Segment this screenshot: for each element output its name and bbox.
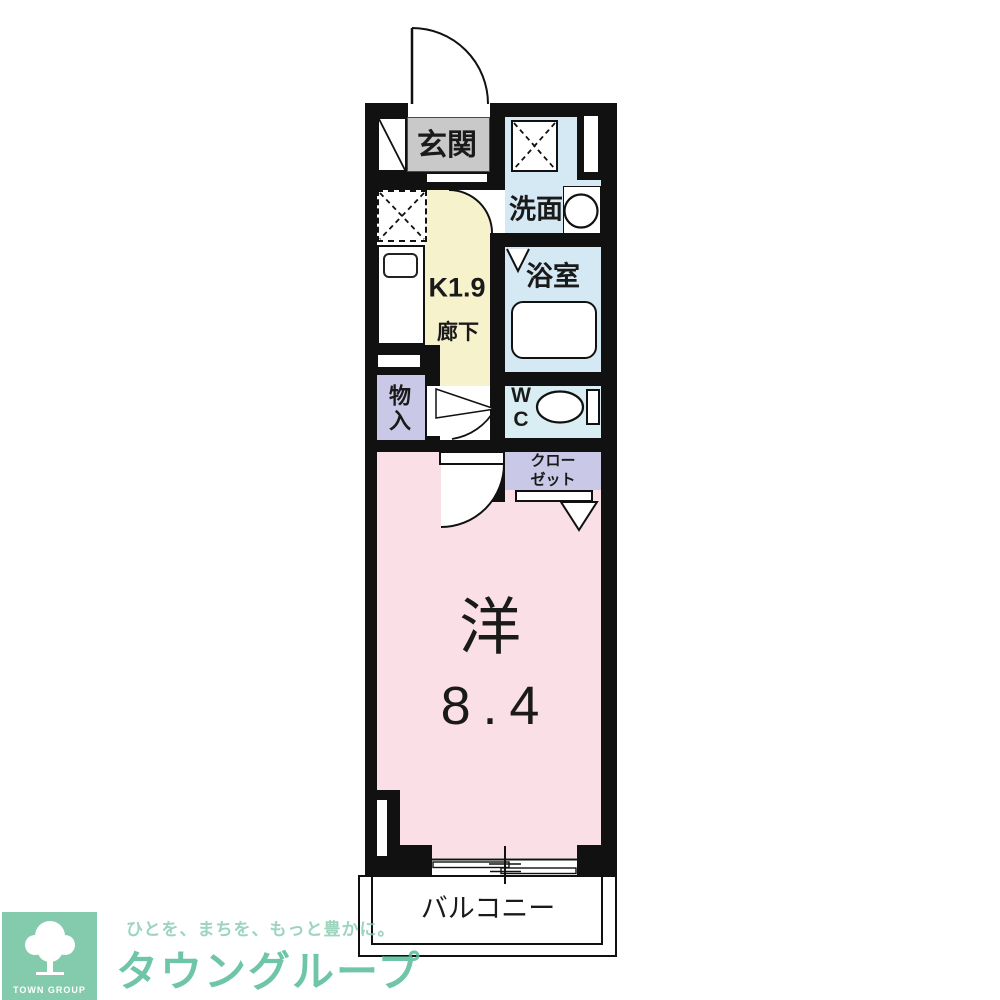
- wall-window-right: [577, 845, 617, 875]
- logo-tagline: ひとを、まちを、もっと豊かに。: [126, 915, 396, 940]
- logo-mark-text: TOWN GROUP: [13, 985, 86, 995]
- front-door-opening: [408, 103, 490, 117]
- wall-mid-vertical: [490, 103, 505, 452]
- washroom-window-slot: [584, 116, 598, 172]
- wall-washroom-bath: [505, 233, 601, 247]
- wall-step-left: [365, 172, 427, 190]
- closet-label: クロー ゼット: [530, 452, 575, 490]
- main-room-size: 8.4: [441, 675, 552, 737]
- floorplan-canvas: 玄関 洗面 浴室 K1.9 廊下 物 入 W C クロー ゼット 洋 8.4 バ…: [0, 0, 1000, 1000]
- wall-window-left: [365, 845, 432, 875]
- kitchen-sink-icon: [383, 253, 418, 278]
- logo-mark: TOWN GROUP: [2, 912, 97, 1000]
- closet-sliding-door-icon: [515, 490, 593, 502]
- wall-left: [365, 103, 377, 875]
- storage-label: 物 入: [389, 384, 411, 435]
- washbasin-counter: [563, 186, 601, 235]
- bathroom-label: 浴室: [526, 261, 580, 292]
- refrigerator-space: [377, 190, 427, 242]
- wall-closet-left: [490, 452, 505, 502]
- front-door-swing-icon: [412, 28, 488, 104]
- toilet-tank-icon: [586, 389, 600, 425]
- wall-right: [601, 103, 617, 875]
- wall-wc-bottom: [490, 438, 617, 452]
- pillar-slot: [377, 800, 387, 856]
- main-room-label: 洋: [459, 592, 521, 663]
- washroom-label: 洗面: [509, 194, 563, 225]
- kitchen-label: K1.9: [428, 272, 485, 303]
- genkan-label: 玄関: [417, 129, 477, 164]
- bathtub-icon: [511, 301, 597, 359]
- logo-brand: タウングループ: [116, 938, 421, 999]
- wall-bath-wc: [490, 372, 617, 386]
- tree-icon: [2, 914, 97, 980]
- wc-door-opening: [427, 386, 440, 436]
- wc-label: W C: [511, 384, 531, 432]
- corridor-label: 廊下: [437, 321, 479, 345]
- genkan-step: [427, 172, 487, 184]
- window-bay: [432, 858, 577, 875]
- shoe-cabinet: [377, 117, 407, 172]
- washroom-door-opening: [490, 190, 505, 233]
- washing-machine-space: [511, 120, 558, 172]
- kitchen-wall-slot: [378, 355, 420, 367]
- wall-room-top: [365, 440, 505, 452]
- town-group-logo: TOWN GROUP ひとを、まちを、もっと豊かに。 タウングループ: [0, 905, 460, 1000]
